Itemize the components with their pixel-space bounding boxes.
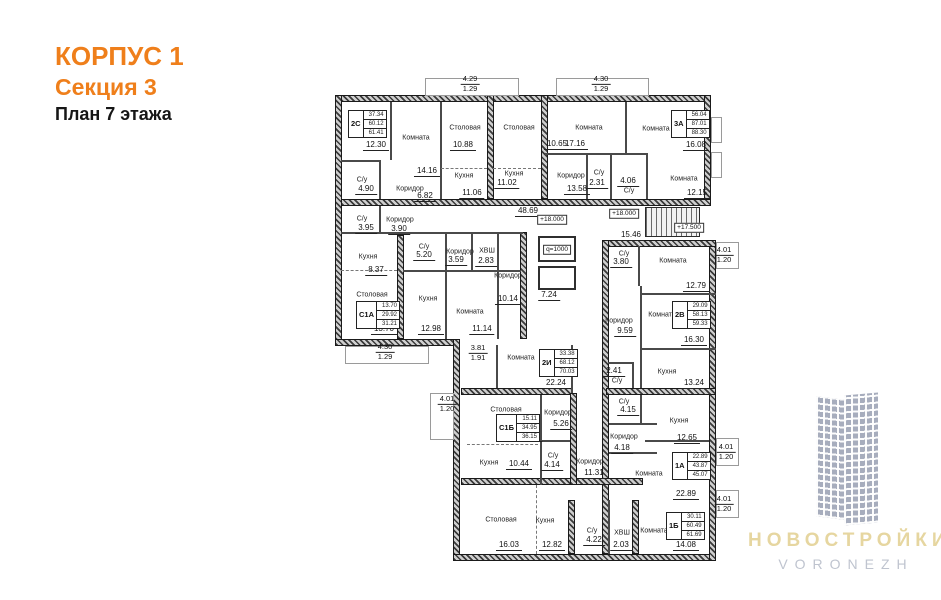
room-area-label: 22.89 [673, 490, 699, 500]
room-area-label: 4.22 [583, 536, 605, 546]
wall-segment [609, 423, 657, 425]
apartment-area-value: 22.89 [688, 453, 710, 461]
wall-segment [568, 500, 575, 554]
room-name-label: Комната [402, 135, 429, 142]
apartment-type: С1Б [497, 415, 517, 441]
balcony-outline [711, 152, 722, 178]
room-area-label: 6.82 [414, 192, 436, 202]
apartment-area-value: 61.41 [364, 128, 386, 137]
wall-segment [379, 206, 381, 232]
room-area-label: 22.24 [543, 379, 569, 389]
room-name-label: С/у [612, 378, 623, 385]
wall-segment [520, 232, 527, 339]
room-area-label: 13.24 [681, 379, 707, 389]
wall-segment [632, 362, 634, 388]
room-name-label: Коридор [386, 217, 414, 224]
logo-city: VORONEZH [748, 556, 941, 572]
wall-segment [640, 286, 642, 388]
room-area-label: 4.06 [617, 177, 639, 187]
wall-segment [602, 240, 716, 247]
dimension-label: 4.301.29 [376, 343, 395, 361]
apartment-area-value: 58.13 [688, 310, 710, 319]
room-area-label: 5.26 [550, 420, 572, 430]
room-name-label: Кухня [419, 296, 438, 303]
room-area-label: 10.14 [495, 295, 521, 305]
room-area-label: 12.82 [539, 541, 565, 551]
room-area-label: 9.59 [614, 327, 636, 337]
room-area-label: 2.31 [586, 179, 608, 189]
room-name-label: Кухня [658, 369, 677, 376]
room-area-label: 12.30 [363, 141, 389, 151]
room-name-label: ХВШ [614, 530, 630, 537]
wall-segment [341, 160, 379, 162]
apartment-type: 2В [673, 302, 688, 328]
apartment-area-value: 29.92 [377, 310, 399, 319]
room-area-label: 16.08 [683, 141, 709, 151]
room-name-label: С/у [624, 188, 635, 195]
room-name-label: Кухня [455, 173, 474, 180]
wall-segment [461, 478, 643, 485]
room-area-label: 15.46 [618, 231, 644, 241]
logo-building-face-left [816, 396, 844, 519]
apartment-tag: 2С37.3460.1261.41 [348, 110, 387, 138]
apartment-type: 2И [540, 350, 555, 376]
balcony-outline [711, 117, 722, 143]
room-name-label: С/у [587, 528, 598, 535]
room-area-label: 12.65 [674, 434, 700, 444]
wall-segment [638, 246, 640, 286]
logo-name: НОВОСТРОЙКИ [748, 530, 941, 552]
wall-segment [453, 339, 460, 561]
room-area-label: 3.59 [445, 256, 467, 266]
apartment-area-value: 15.11 [517, 415, 539, 423]
apartment-area-value: 31.21 [377, 319, 399, 328]
apartment-tag: 2В29.0958.1359.33 [672, 301, 711, 329]
wall-segment [335, 339, 459, 346]
wall-segment [632, 500, 639, 554]
room-name-label: Комната [575, 125, 602, 132]
apartment-tag: 1А22.8943.8745.07 [672, 452, 711, 480]
apartment-type: 2С [349, 111, 364, 137]
apartment-tag: 1Б30.1160.4961.69 [666, 512, 705, 540]
wall-segment [496, 345, 498, 388]
wall-segment [335, 95, 342, 346]
apartment-areas: 13.7029.9231.21 [377, 302, 399, 328]
page-root: { "header": { "building": "КОРПУС 1", "s… [0, 0, 941, 600]
wall-segment [545, 153, 646, 155]
wall-segment [640, 348, 716, 350]
partition-dashed [493, 168, 541, 169]
room-name-label: Кухня [480, 460, 499, 467]
apartment-area-value: 45.07 [688, 470, 710, 479]
dimension-label: 4.291.29 [461, 75, 480, 93]
apartment-area-value: 30.11 [682, 513, 704, 521]
room-area-label: 2.83 [475, 257, 497, 267]
apartment-area-value: 43.87 [688, 461, 710, 470]
apartment-areas: 37.3460.1261.41 [364, 111, 386, 137]
apartment-area-value: 34.95 [517, 423, 539, 432]
room-name-label: ХВШ [479, 248, 495, 255]
apartment-tag: С1А13.7029.9231.21 [356, 301, 400, 329]
elevation-mark: q=1000 [543, 245, 571, 255]
room-name-label: Столовая [356, 292, 387, 299]
apartment-area-value: 59.33 [688, 319, 710, 328]
apartment-area-value: 60.49 [682, 521, 704, 530]
wall-segment [570, 393, 577, 485]
wall-segment [625, 102, 627, 153]
room-name-label: Столовая [449, 125, 480, 132]
room-area-label: 2.41 [603, 367, 625, 377]
room-name-label: Кухня [536, 518, 555, 525]
room-name-label: Коридор [605, 318, 633, 325]
room-name-label: Комната [507, 355, 534, 362]
room-area-label: 11.14 [469, 325, 494, 335]
room-area-label: 12.98 [418, 325, 444, 335]
elevator-shaft [538, 266, 576, 290]
wall-segment [646, 153, 648, 199]
apartment-area-value: 68.12 [555, 358, 577, 367]
wall-segment [440, 102, 442, 199]
dimension-label: 4.011.20 [717, 443, 736, 461]
wall-segment [608, 362, 634, 364]
apartment-areas: 30.1160.4961.69 [682, 513, 704, 539]
room-name-label: Столовая [490, 407, 521, 414]
logo-building-icon [810, 394, 886, 528]
apartment-area-value: 36.15 [517, 432, 539, 441]
apartment-areas: 15.1134.9536.15 [517, 415, 539, 441]
apartment-area-value: 13.70 [377, 302, 399, 310]
partition-dashed [467, 444, 538, 445]
room-area-label: 3.90 [388, 225, 410, 235]
room-name-label: С/у [594, 170, 605, 177]
room-name-label: Коридор [610, 434, 638, 441]
apartment-areas: 22.8943.8745.07 [688, 453, 710, 479]
wall-segment [445, 272, 447, 339]
wall-segment [610, 153, 612, 199]
elevation-mark: +17.500 [674, 223, 704, 233]
elevation-mark: +18.000 [537, 215, 567, 225]
room-name-label: Коридор [576, 459, 604, 466]
wall-segment [461, 388, 573, 395]
wall-segment [640, 395, 642, 423]
dimension-label: 3.811.91 [469, 344, 488, 362]
apartment-area-value: 60.12 [364, 119, 386, 128]
room-name-label: Кухня [670, 418, 689, 425]
room-area-label: 14.16 [414, 167, 440, 177]
room-area-label: 7.24 [538, 291, 560, 301]
apartment-areas: 33.3868.1270.03 [555, 350, 577, 376]
room-area-label: 11.02 [494, 179, 519, 189]
room-area-label: 4.15 [617, 406, 639, 416]
room-name-label: Комната [659, 258, 686, 265]
apartment-area-value: 56.04 [687, 111, 709, 119]
room-name-label: С/у [357, 216, 368, 223]
apartment-type: С1А [357, 302, 377, 328]
developer-logo: НОВОСТРОЙКИ VORONEZH [748, 388, 941, 588]
apartment-area-value: 88.30 [687, 128, 709, 137]
room-area-label: 5.20 [413, 251, 435, 261]
apartment-tag: 3А56.0487.0188.30 [671, 110, 710, 138]
room-area-label: 4.90 [355, 185, 377, 195]
apartment-area-value: 37.34 [364, 111, 386, 119]
room-name-label: Комната [670, 176, 697, 183]
room-name-label: Коридор [557, 173, 585, 180]
elevation-mark: +18.000 [609, 209, 639, 219]
room-name-label: Комната [456, 309, 483, 316]
room-area-label: 12.79 [683, 282, 709, 292]
room-area-label: 3.80 [610, 258, 632, 268]
dimension-label: 4.011.20 [438, 395, 457, 413]
wall-segment [390, 102, 392, 160]
room-name-label: Комната [640, 528, 667, 535]
room-area-label: 16.30 [681, 336, 707, 346]
room-area-label: 4.14 [541, 461, 563, 471]
apartment-type: 1Б [667, 513, 682, 539]
wall-segment [487, 95, 494, 199]
room-area-label: 17.16 [562, 140, 588, 150]
apartment-areas: 56.0487.0188.30 [687, 111, 709, 137]
room-name-label: Столовая [503, 125, 534, 132]
wall-segment [341, 199, 711, 206]
room-name-label: С/у [548, 453, 559, 460]
room-name-label: Коридор [494, 273, 522, 280]
dimension-label: 4.011.20 [715, 246, 734, 264]
apartment-area-value: 70.03 [555, 367, 577, 376]
wall-segment [335, 95, 711, 102]
apartment-type: 1А [673, 453, 688, 479]
room-area-label: 14.08 [673, 541, 699, 551]
room-name-label: Столовая [485, 517, 516, 524]
room-name-label: Кухня [359, 254, 378, 261]
apartment-type: 3А [672, 111, 687, 137]
dimension-label: 4.301.29 [592, 75, 611, 93]
room-area-label: 2.03 [610, 541, 632, 551]
logo-building-face-right [844, 393, 878, 526]
room-name-label: Комната [642, 126, 669, 133]
apartment-area-value: 87.01 [687, 119, 709, 128]
wall-segment [379, 160, 381, 199]
wall-segment [640, 293, 716, 295]
apartment-area-value: 61.69 [682, 530, 704, 539]
apartment-tag: 2И33.3868.1270.03 [539, 349, 578, 377]
room-area-label: 4.18 [611, 444, 633, 454]
wall-segment [540, 440, 570, 442]
dimension-label: 4.011.20 [715, 495, 734, 513]
wall-segment [453, 554, 711, 561]
room-name-label: Комната [635, 471, 662, 478]
room-area-label: 16.03 [496, 541, 522, 551]
partition-dashed [441, 168, 487, 169]
wall-segment [606, 388, 716, 395]
room-name-label: Кухня [505, 171, 524, 178]
room-area-label: 11.06 [459, 189, 484, 199]
apartment-area-value: 33.38 [555, 350, 577, 358]
apartment-tag: С1Б15.1134.9536.15 [496, 414, 540, 442]
room-area-label: 12.15 [684, 189, 710, 199]
room-area-label: 10.88 [450, 141, 476, 151]
room-name-label: С/у [357, 177, 368, 184]
room-name-label: Коридор [544, 410, 572, 417]
wall-segment [497, 232, 499, 339]
room-area-label: 11.31 [581, 469, 606, 479]
apartment-areas: 29.0958.1359.33 [688, 302, 710, 328]
apartment-area-value: 29.09 [688, 302, 710, 310]
room-area-label: 10.44 [506, 460, 532, 470]
room-area-label: 8.37 [365, 266, 387, 276]
room-area-label: 3.95 [355, 224, 377, 234]
